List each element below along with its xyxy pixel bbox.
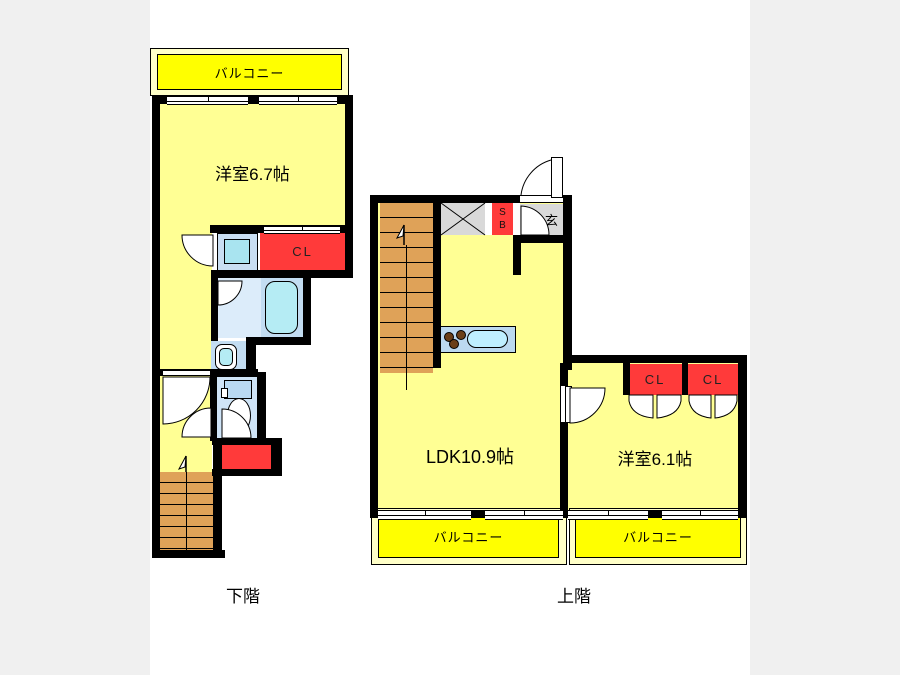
left-margin-band [0,0,150,675]
window [662,510,738,520]
shoe-box-label-s: S [499,206,506,219]
room-door-leaf-icon [565,386,572,423]
wall [563,355,747,363]
upper-floor-caption: 上階 [524,582,624,607]
wall [152,95,160,558]
wall [213,438,222,558]
washbasin-bowl [219,348,233,366]
entry-door-swing-icon [521,160,551,195]
wall [682,363,688,395]
wall [337,95,353,104]
window [485,510,563,520]
pipe-space-box [441,203,485,235]
window [167,96,248,105]
lower-stairs-centerline [186,472,187,550]
upper-closet-2-label: CL [703,372,724,387]
window [568,510,648,520]
window-tick [302,227,303,231]
entrance-genkan: 玄 [520,204,563,235]
stove-burner-icon [456,330,466,340]
upper-stairs-centerline [406,245,407,390]
toilet-flush-handle [221,388,228,398]
upper-balcony-1: バルコニー [378,515,559,558]
upper-balcony-2-label: バルコニー [623,527,693,546]
bathtub-icon [265,281,298,334]
window [259,96,337,105]
wall [370,195,378,518]
wall [738,355,747,518]
wall [563,195,572,370]
wall [210,375,217,441]
shoe-box-label-b: B [499,219,506,232]
wall [211,270,353,278]
lower-room-label: 洋室6.7帖 [160,160,345,185]
upper-closet-2: CL [688,364,738,395]
wall [513,235,521,275]
gap [485,203,492,235]
door-opening [163,371,210,375]
toilet-bowl-icon [227,398,251,433]
shoe-box: S B [492,203,513,235]
wall [623,363,630,395]
upper-balcony-1-label: バルコニー [434,527,504,546]
lower-closet: CL [260,232,345,271]
wall [345,95,353,278]
window-tick [425,511,426,516]
washing-machine-icon [224,239,250,264]
lower-corridor [160,233,212,472]
toilet-tank [224,380,252,399]
window-tick [524,511,525,516]
wall [471,510,485,518]
kitchen-sink-icon [467,330,508,348]
lower-closet-label: CL [292,244,313,259]
entrance-label: 玄 [545,210,558,229]
entry-door-leaf-icon [551,157,563,198]
lower-balcony: バルコニー [157,54,342,90]
lower-storage-box [220,444,271,469]
wall [211,277,218,341]
upper-balcony-2: バルコニー [575,515,741,558]
upper-closet-1: CL [628,364,682,395]
wall [210,369,258,377]
floorplan-canvas: バルコニー CL [0,0,900,675]
lower-balcony-label: バルコニー [215,63,285,82]
upper-closet-1-label: CL [645,372,666,387]
wall [648,510,662,518]
gap [513,203,520,235]
window-tick [208,97,209,101]
window-tick [298,97,299,101]
window [378,510,471,520]
bathroom [217,277,261,338]
upper-room-label: 洋室6.1帖 [580,445,730,470]
wall [152,95,168,104]
lower-floor-caption: 下階 [193,582,293,607]
window-tick [608,511,609,516]
wall [212,469,282,476]
stove-burner-icon [449,339,459,349]
wall [433,203,441,368]
right-margin-band [750,0,900,675]
wall [257,372,266,444]
wall [246,95,260,104]
window-tick [700,511,701,516]
ldk-label: LDK10.9帖 [390,443,550,469]
wall [303,272,311,345]
window [264,226,340,234]
